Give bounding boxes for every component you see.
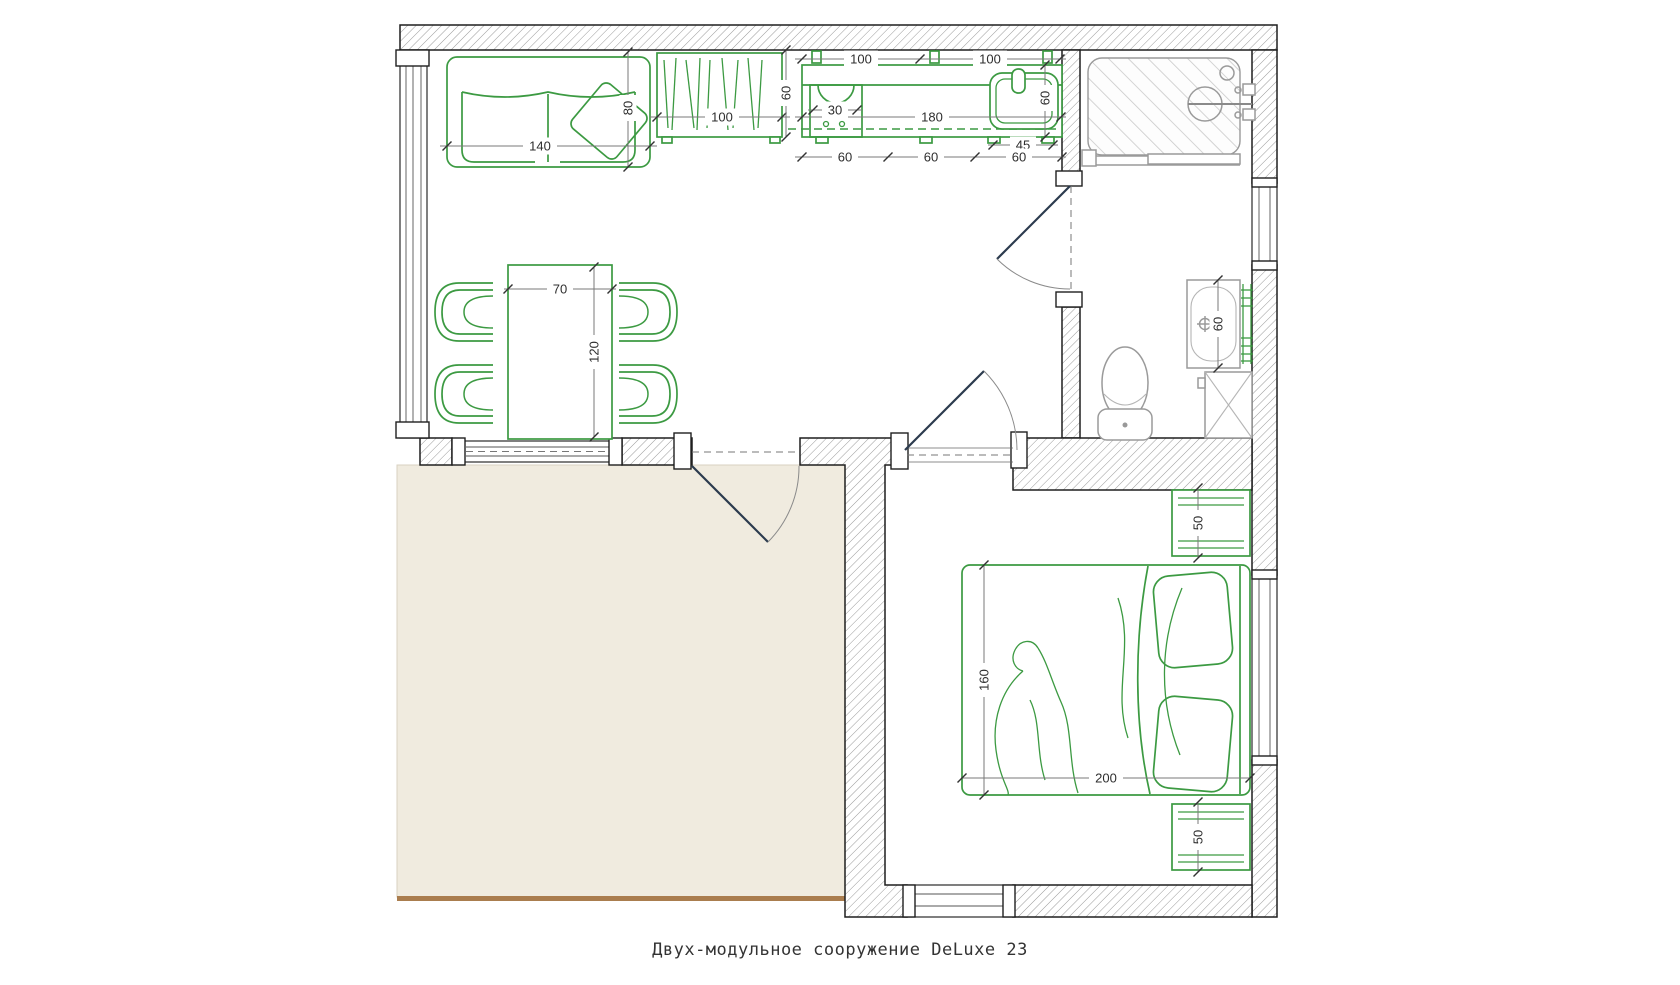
svg-text:60: 60 [1211, 317, 1226, 331]
dim-counter-length: 180 [915, 109, 949, 126]
svg-text:60: 60 [779, 86, 794, 100]
svg-text:140: 140 [529, 139, 551, 154]
window-bathroom-right [1252, 178, 1277, 270]
dim-bed-length: 200 [1089, 770, 1123, 787]
wall-right-lower [1252, 760, 1277, 917]
dim-basin-width: 60 [1210, 311, 1227, 337]
svg-text:80: 80 [621, 101, 636, 115]
dim-bed-width: 160 [976, 663, 993, 697]
svg-text:100: 100 [711, 110, 733, 125]
nightstand-top [1172, 490, 1250, 556]
svg-text:50: 50 [1191, 830, 1206, 844]
svg-text:30: 30 [828, 103, 842, 118]
towel-rail [1241, 284, 1253, 364]
dining-chair [619, 283, 677, 341]
window-bedroom-right [1252, 570, 1277, 765]
toilet [1098, 347, 1152, 440]
floor-plan: 140 80 100 60 100 100 30 180 60 45 60 60… [0, 0, 1680, 985]
dining-chair [435, 283, 493, 341]
wall-bathroom-partition-lower [1062, 307, 1080, 438]
dim-nightstand-top: 50 [1190, 510, 1207, 536]
dim-stove-width: 30 [822, 102, 848, 119]
wall-right-middle [1252, 265, 1277, 575]
dim-upper-cabinet-right: 100 [973, 51, 1007, 68]
plan-title: Двух-модульное сооружение DeLuxe 23 [0, 940, 1680, 960]
svg-text:100: 100 [850, 52, 872, 67]
dim-shelf-depth: 60 [778, 80, 795, 106]
sink-faucet-icon [1012, 69, 1025, 93]
shower-door-handle-icon [1082, 150, 1096, 166]
dim-table-length: 120 [586, 335, 603, 369]
svg-text:60: 60 [924, 150, 938, 165]
dim-sofa-depth: 80 [620, 95, 637, 121]
svg-text:60: 60 [838, 150, 852, 165]
door-bathroom [997, 186, 1071, 289]
dim-counter-segment-2: 60 [918, 149, 944, 166]
dining-chair [435, 365, 493, 423]
dim-upper-cabinet-left: 100 [844, 51, 878, 68]
bookshelf [657, 53, 782, 143]
svg-text:60: 60 [1038, 91, 1053, 105]
svg-text:120: 120 [587, 341, 602, 363]
door-bedroom [905, 371, 1017, 462]
shower [1082, 58, 1255, 166]
wall-top [400, 25, 1277, 50]
svg-text:60: 60 [1012, 150, 1026, 165]
wall-bedroom-bottom [1013, 885, 1252, 917]
washing-machine [1198, 372, 1252, 438]
dim-counter-segment-1: 60 [832, 149, 858, 166]
svg-text:70: 70 [553, 282, 567, 297]
window-terrace-glazing [452, 438, 622, 465]
dining-chair [619, 365, 677, 423]
svg-text:160: 160 [977, 669, 992, 691]
svg-text:200: 200 [1095, 771, 1117, 786]
floor-plan-page: 140 80 100 60 100 100 30 180 60 45 60 60… [0, 0, 1680, 985]
window-living-left [396, 50, 429, 438]
bed [962, 565, 1250, 795]
nightstand-bottom [1172, 804, 1250, 870]
svg-text:50: 50 [1191, 516, 1206, 530]
dim-nightstand-bottom: 50 [1190, 824, 1207, 850]
wall-bottom-living-a [420, 438, 452, 465]
wall-bedroom-top [1013, 438, 1252, 490]
dim-shelf-width: 100 [705, 109, 739, 126]
window-bedroom-bottom [903, 885, 1015, 917]
dim-table-width: 70 [547, 281, 573, 298]
kitchen-counter [788, 51, 1062, 143]
svg-text:100: 100 [979, 52, 1001, 67]
svg-text:180: 180 [921, 110, 943, 125]
dim-sink-depth: 60 [1037, 85, 1054, 111]
dim-counter-segment-3: 60 [1006, 149, 1032, 166]
dim-sofa-width: 140 [523, 138, 557, 155]
